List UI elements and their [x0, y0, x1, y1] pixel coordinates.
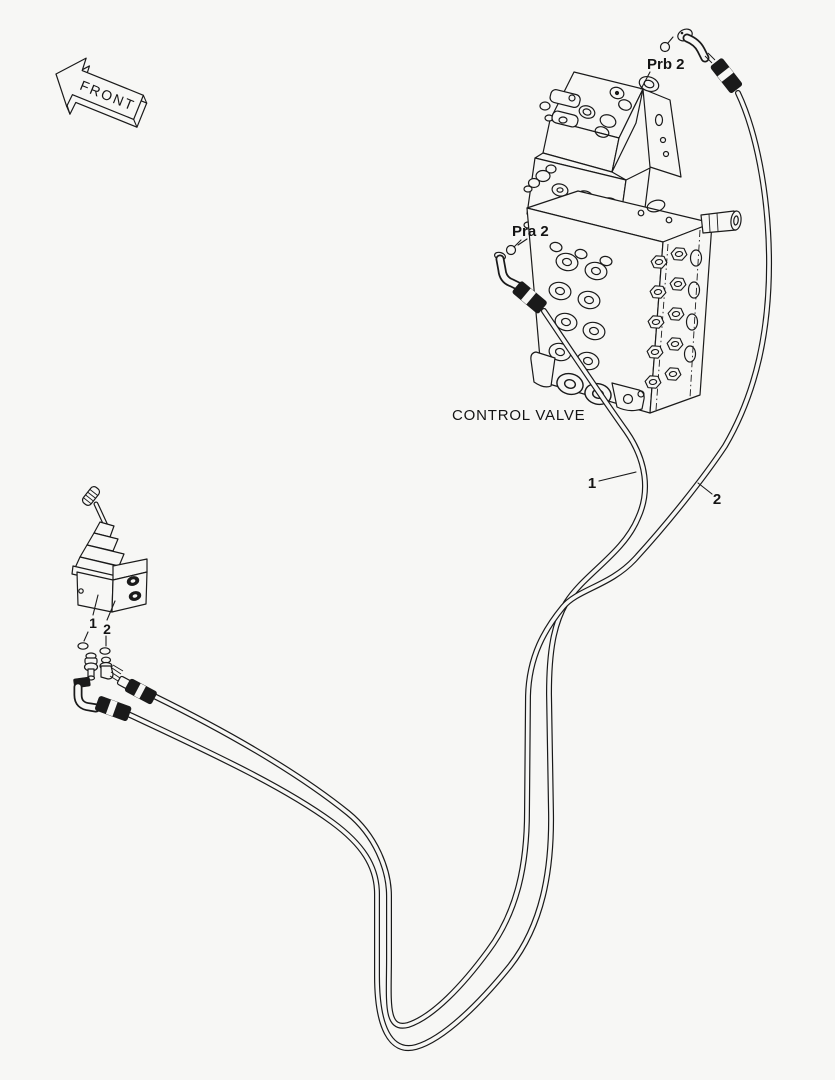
- left-mounting-bracket: [531, 352, 555, 387]
- item1-label: 1: [89, 615, 97, 631]
- o-ring-symbol-prb2: [661, 43, 670, 52]
- hose2-label: 2: [713, 491, 721, 508]
- item2-label: 2: [103, 621, 111, 637]
- page-background: [0, 0, 835, 1080]
- o-ring-item1: [78, 643, 88, 649]
- pilot-piping-parts-diagram: FRONT: [0, 0, 835, 1080]
- o-ring-item2: [100, 648, 110, 654]
- pra2-label: Pra 2: [512, 223, 549, 240]
- control-valve-label: CONTROL VALVE: [452, 407, 585, 424]
- prb2-label: Prb 2: [647, 56, 685, 73]
- right-cylindrical-fitting: [701, 211, 742, 233]
- hose1-label: 1: [588, 475, 596, 492]
